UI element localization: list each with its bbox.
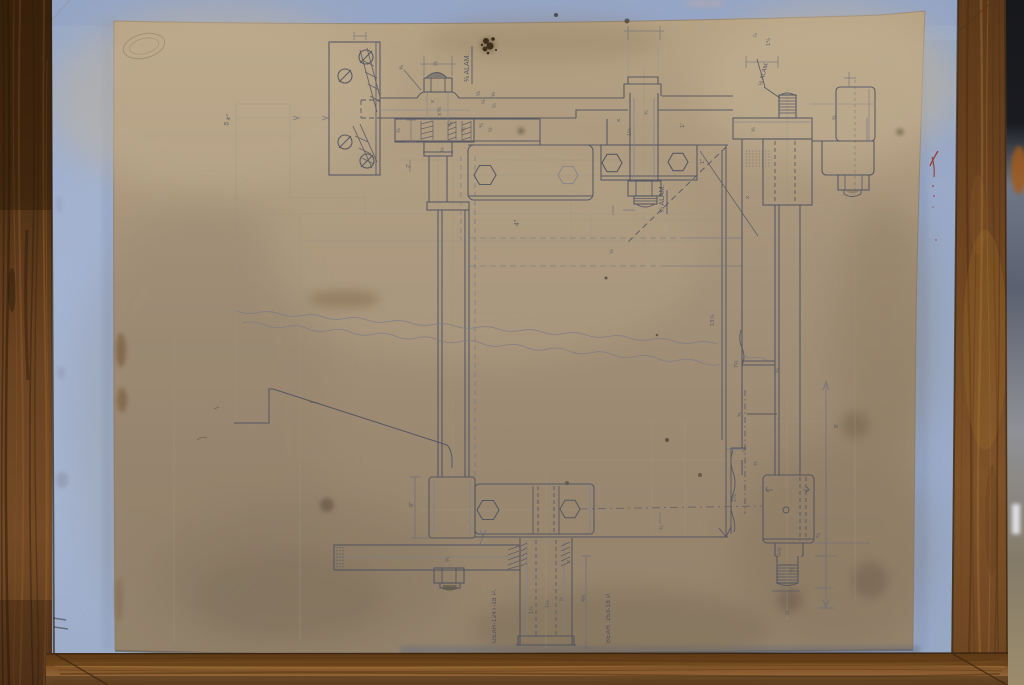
svg-text:7½: 7½: [733, 360, 740, 368]
svg-text:½: ½: [784, 610, 791, 615]
svg-text:⅝: ⅝: [399, 65, 405, 70]
svg-text:⅕: ⅕: [816, 532, 822, 538]
svg-text:8": 8": [409, 502, 415, 507]
svg-text:⅝: ⅝: [737, 412, 743, 417]
svg-text:⅞: ⅞: [753, 33, 759, 38]
svg-text:⅛: ⅛: [433, 61, 439, 66]
svg-text:2': 2': [406, 164, 412, 168]
svg-text:GEAR-124T-18 P.: GEAR-124T-18 P.: [492, 589, 498, 643]
svg-text:⅜ ALAM.: ⅜ ALAM.: [464, 54, 471, 82]
svg-text:⅝: ⅝: [753, 461, 759, 466]
svg-text:⅜: ⅜: [437, 107, 443, 112]
svg-text:½: ½: [439, 147, 446, 152]
svg-text:¾: ¾: [461, 127, 467, 132]
svg-text:⅛: ⅛: [481, 99, 487, 104]
svg-text:1": 1": [700, 159, 706, 164]
svg-text:¼: ¼: [492, 103, 498, 108]
svg-text:¾: ¾: [659, 525, 665, 530]
svg-text:⅕ ⁄: ⅕ ⁄: [448, 119, 454, 127]
svg-text:13 ⅞: 13 ⅞: [710, 314, 716, 326]
svg-text:⅝: ⅝: [491, 92, 497, 97]
svg-text:¾: ¾: [644, 110, 650, 115]
svg-text:1⅛: 1⅛: [627, 128, 633, 136]
svg-text:⅝: ⅝: [396, 128, 402, 133]
svg-text:2⅞: 2⅞: [732, 494, 738, 502]
svg-text:⅜: ⅜: [445, 557, 451, 562]
svg-text:¾: ¾: [789, 568, 795, 573]
svg-text:⅛: ⅛: [476, 91, 482, 96]
svg-text:⅝: ⅝: [751, 127, 757, 132]
svg-text:1⅕: 1⅕: [766, 37, 772, 46]
svg-text:⅛ ⅝: ⅛ ⅝: [777, 547, 783, 557]
svg-text:⅞: ⅞: [559, 597, 565, 602]
svg-text:⅝: ⅝: [742, 447, 748, 452]
svg-text:8': 8': [834, 424, 840, 428]
svg-text:4": 4": [514, 219, 521, 226]
svg-text:1⅛: 1⅛: [545, 600, 551, 608]
svg-text:¼ ALAM.: ¼ ALAM.: [659, 185, 666, 213]
svg-text:1⅞: 1⅞: [529, 606, 535, 614]
svg-text:⅛: ⅛: [609, 249, 615, 254]
svg-text:⅕: ⅕: [479, 122, 485, 128]
svg-text:¾: ¾: [775, 368, 781, 373]
svg-text:BEAR. 253-18 P.: BEAR. 253-18 P.: [606, 592, 612, 643]
svg-text:⅝: ⅝: [832, 115, 838, 120]
svg-text:½: ½: [487, 127, 494, 132]
svg-text:4⅝: 4⅝: [581, 594, 587, 602]
